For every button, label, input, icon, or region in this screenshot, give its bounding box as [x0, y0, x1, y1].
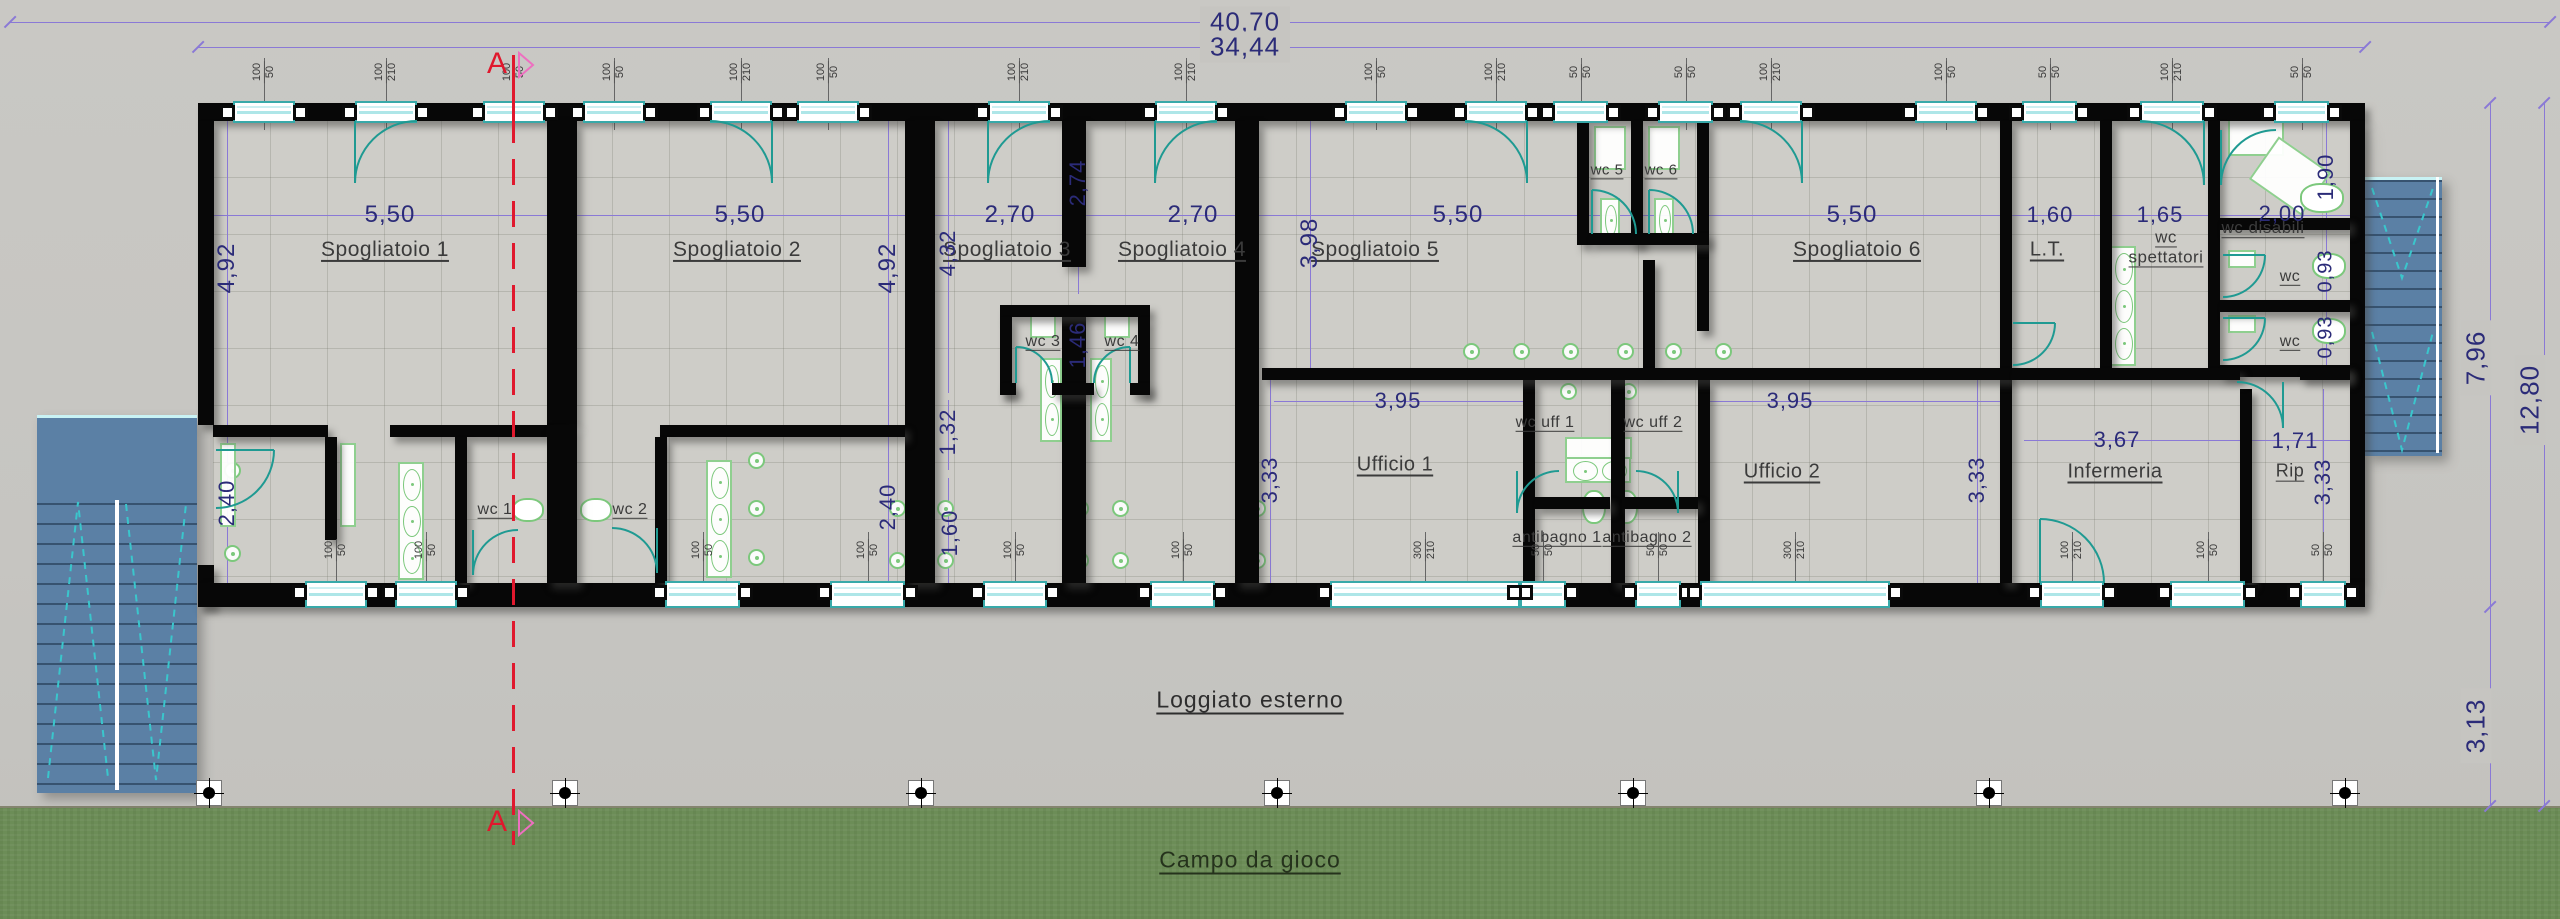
- room-label: wc uff 1: [1516, 414, 1575, 432]
- wall: [1643, 260, 1655, 370]
- window-jamb: [382, 585, 397, 600]
- sink-unit: [398, 462, 424, 580]
- room-label: antibagno 1: [1512, 529, 1601, 547]
- door-swing-arc: [2013, 323, 2055, 365]
- wall: [2300, 368, 2350, 380]
- shower-head: [1560, 383, 1577, 400]
- door-swing-arc: [1016, 347, 1052, 383]
- stair-direction-arrow: [2372, 332, 2437, 454]
- dimension-text: 12,80: [2515, 355, 2546, 445]
- window-jamb: [1405, 105, 1420, 120]
- window-size-label: 100210: [1007, 61, 1031, 83]
- window-bottom: [2170, 581, 2245, 608]
- toilet: [512, 498, 544, 522]
- field-label: Campo da gioco: [1159, 847, 1341, 874]
- door-swing-arc: [1592, 190, 1636, 234]
- window-jamb: [570, 105, 585, 120]
- window-jamb: [1137, 585, 1152, 600]
- window-top: [1553, 101, 1608, 123]
- window-jamb: [1317, 585, 1332, 600]
- window-jamb: [770, 105, 785, 120]
- dimension-text: 1,65: [2137, 202, 2184, 228]
- window-jamb: [652, 585, 667, 600]
- wall: [547, 121, 577, 425]
- shower-head: [1112, 552, 1129, 569]
- window-jamb: [342, 105, 357, 120]
- window-jamb: [1902, 105, 1917, 120]
- room-label: Spogliatoio 3: [943, 238, 1071, 262]
- window-top: [233, 101, 295, 123]
- room-label: wc spettatori: [2119, 227, 2214, 266]
- room-label: Ufficio 2: [1744, 461, 1820, 484]
- wall: [1000, 383, 1016, 395]
- section-mark-a-bottom: A: [487, 805, 507, 839]
- room-label: wc 4: [1105, 333, 1140, 351]
- wall: [547, 425, 577, 583]
- wall: [2220, 300, 2350, 312]
- column-marker: [196, 780, 222, 806]
- window-jamb: [738, 585, 753, 600]
- window-bottom: [395, 581, 457, 608]
- section-arrow-flag: [518, 810, 536, 836]
- dimension-text: 3,33: [2310, 459, 2336, 506]
- door-swing-arc: [355, 121, 417, 183]
- window-size-label: 5050: [1673, 64, 1697, 80]
- window-jamb: [1452, 105, 1467, 120]
- window-jamb: [2102, 585, 2117, 600]
- door-swing-arc: [2223, 318, 2265, 360]
- window-jamb: [1711, 105, 1726, 120]
- wall: [325, 437, 337, 540]
- window-bottom: [2040, 581, 2104, 608]
- wall: [2000, 121, 2012, 583]
- window-jamb: [857, 105, 872, 120]
- window-bottom: [1635, 581, 1681, 608]
- window-jamb: [2027, 585, 2042, 600]
- window-jamb: [970, 585, 985, 600]
- toilet: [580, 498, 612, 522]
- dimension-text: 1,32: [935, 409, 961, 456]
- room-label: Spogliatoio 5: [1311, 238, 1439, 262]
- window-jamb: [1606, 105, 1621, 120]
- window-top: [797, 101, 859, 123]
- dimension-text: 3,95: [1375, 388, 1422, 414]
- door-swing-arc: [1465, 121, 1527, 183]
- window-jamb: [1888, 585, 1903, 600]
- door-swing-arc: [1094, 347, 1130, 383]
- window-size-label: 100210: [729, 61, 753, 83]
- dimension-text: 1,90: [2313, 154, 2339, 201]
- window-top: [2140, 101, 2204, 123]
- wall: [1577, 121, 1589, 245]
- window-top: [988, 101, 1050, 123]
- window-jamb: [975, 105, 990, 120]
- dimension-text: 2,74: [1065, 160, 1091, 207]
- door-swing-arc: [1155, 121, 1217, 183]
- room-label: wc 3: [1026, 333, 1061, 351]
- window-jamb: [1622, 585, 1637, 600]
- window-size-label: 5050: [1568, 64, 1592, 80]
- window-size-label: 10050: [602, 61, 626, 83]
- dimension-text: 3,95: [1767, 388, 1814, 414]
- window-jamb: [1507, 585, 1522, 600]
- window-size-label: 5050: [2289, 64, 2313, 80]
- wall: [1697, 121, 1709, 331]
- window-jamb: [2261, 105, 2276, 120]
- wall: [1698, 380, 1710, 583]
- window-top: [355, 101, 417, 123]
- window-jamb: [2009, 105, 2024, 120]
- stair-direction-arrow: [48, 502, 112, 782]
- window-jamb: [1525, 105, 1540, 120]
- door-swing-arc: [710, 121, 772, 183]
- window-jamb: [1215, 105, 1230, 120]
- room-label: wc: [2280, 268, 2301, 286]
- wall: [455, 437, 467, 583]
- dimension-text: 1,71: [2272, 428, 2319, 454]
- column-marker: [1620, 780, 1646, 806]
- room-label: wc 6: [1645, 161, 1678, 178]
- column-marker: [908, 780, 934, 806]
- shower-head: [1463, 343, 1480, 360]
- floor-plan-canvas: Loggiato esterno Campo da gioco A A 1005…: [0, 0, 2560, 919]
- window-jamb: [2327, 105, 2342, 120]
- shower-head: [1665, 343, 1682, 360]
- window-bottom: [2300, 581, 2346, 608]
- window-size-label: 10050: [816, 61, 840, 83]
- window-size-label: 5050: [1531, 542, 1555, 558]
- column-marker: [2332, 780, 2358, 806]
- wall: [198, 121, 214, 425]
- wall: [1262, 368, 2012, 380]
- window-jamb: [1687, 585, 1702, 600]
- door-swing-arc: [2237, 382, 2283, 428]
- window-jamb: [1645, 105, 1660, 120]
- door-swing-arc: [2221, 130, 2276, 185]
- stair-direction-arrow: [2372, 188, 2437, 282]
- dimension-text: 2,40: [214, 480, 240, 527]
- window-size-label: 100210: [374, 61, 398, 83]
- shower-head: [1513, 343, 1530, 360]
- door-swing-arc: [1649, 190, 1693, 234]
- dimension-text: 4,92: [874, 243, 902, 294]
- window-jamb: [292, 585, 307, 600]
- wall: [1130, 383, 1150, 395]
- window-size-label: 10050: [1003, 539, 1027, 561]
- shower-head: [1617, 343, 1634, 360]
- room-label: Ufficio 1: [1357, 454, 1433, 477]
- window-size-label: 100210: [1759, 61, 1783, 83]
- room-label: L.T.: [2030, 239, 2064, 262]
- shower-head: [748, 452, 765, 469]
- column-marker: [1976, 780, 2002, 806]
- window-jamb: [2202, 105, 2217, 120]
- room-label: wc: [2280, 333, 2301, 351]
- window-jamb: [1800, 105, 1815, 120]
- window-bottom: [1330, 581, 1520, 608]
- dimension-text: 1,60: [2027, 202, 2074, 228]
- window-size-label: 10050: [324, 539, 348, 561]
- dimension-text: 5,50: [365, 201, 416, 229]
- window-size-label: 10050: [414, 539, 438, 561]
- dimension-text: 5,50: [1827, 201, 1878, 229]
- stair-direction-arrow: [126, 504, 190, 784]
- window-jamb: [2287, 585, 2302, 600]
- column-marker: [552, 780, 578, 806]
- wall: [1000, 305, 1150, 317]
- shower-head: [889, 552, 906, 569]
- window-jamb: [643, 105, 658, 120]
- window-top: [1658, 101, 1713, 123]
- window-bottom: [983, 581, 1047, 608]
- wall: [1611, 380, 1625, 583]
- window-size-label: 100210: [1174, 61, 1198, 83]
- window-size-label: 10050: [1170, 539, 1194, 561]
- window-jamb: [1332, 105, 1347, 120]
- room-label: Spogliatoio 6: [1793, 238, 1921, 262]
- wall: [1235, 121, 1259, 583]
- window-jamb: [293, 105, 308, 120]
- window-size-label: 100210: [1484, 61, 1508, 83]
- wall: [2012, 368, 2240, 380]
- window-top: [2022, 101, 2077, 123]
- window-jamb: [455, 585, 470, 600]
- dimension-text: 3,33: [1964, 457, 1990, 504]
- window-jamb: [817, 585, 832, 600]
- window-jamb: [1048, 105, 1063, 120]
- window-size-label: 10050: [855, 539, 879, 561]
- window-jamb: [784, 105, 799, 120]
- wall: [1052, 383, 1094, 395]
- window-size-label: 300210: [1783, 539, 1807, 561]
- shower-head: [1715, 343, 1732, 360]
- wall: [1589, 233, 1709, 245]
- room-label: Spogliatoio 4: [1118, 238, 1246, 262]
- window-top: [1740, 101, 1802, 123]
- window-jamb: [220, 105, 235, 120]
- window-top: [2274, 101, 2329, 123]
- dimension-text: 5,50: [1433, 201, 1484, 229]
- dimension-text: 4,32: [935, 230, 961, 277]
- room-label: Infermeria: [2067, 461, 2162, 484]
- window-jamb: [470, 105, 485, 120]
- dimension-line: [1710, 401, 2000, 402]
- window-jamb: [1975, 105, 1990, 120]
- section-line: [512, 55, 515, 117]
- window-jamb: [2075, 105, 2090, 120]
- window-bottom: [830, 581, 905, 608]
- window-jamb: [1540, 105, 1555, 120]
- window-top: [710, 101, 772, 123]
- window-bottom: [1700, 581, 1890, 608]
- column-marker: [1264, 780, 1290, 806]
- dimension-text: 0,93: [2315, 250, 2338, 293]
- dimension-text: 4,92: [213, 243, 241, 294]
- dimension-text: 3,13: [2461, 689, 2492, 764]
- window-bottom: [665, 581, 740, 608]
- stair-divider: [115, 500, 119, 790]
- wall: [2350, 121, 2365, 583]
- dimension-text: 3,98: [1296, 218, 1324, 269]
- window-size-label: 10050: [2195, 539, 2219, 561]
- window-jamb: [2243, 585, 2258, 600]
- room-label: wc 1: [478, 501, 513, 519]
- door-swing-arc: [988, 121, 1050, 183]
- window-jamb: [2157, 585, 2172, 600]
- window-top: [1155, 101, 1217, 123]
- window-jamb: [1564, 585, 1579, 600]
- window-bottom: [305, 581, 367, 608]
- window-size-label: 100210: [2160, 61, 2184, 83]
- dimension-text: 34,44: [1200, 32, 1290, 63]
- wall: [2100, 121, 2112, 368]
- door-swing-arc: [2223, 255, 2265, 297]
- section-line: [512, 117, 515, 845]
- window-size-label: 300210: [1413, 539, 1437, 561]
- room-label: Spogliatoio 1: [321, 238, 449, 262]
- window-jamb: [697, 105, 712, 120]
- window-jamb: [2127, 105, 2142, 120]
- window-size-label: 10050: [1934, 61, 1958, 83]
- dimension-text: 3,67: [2094, 427, 2141, 453]
- section-mark-a-top: A: [487, 47, 507, 81]
- window-size-label: 10050: [252, 61, 276, 83]
- dimension-text: 5,50: [715, 201, 766, 229]
- dimension-text: 0,93: [2315, 316, 2338, 359]
- window-jamb: [2344, 585, 2359, 600]
- window-top: [1915, 101, 1977, 123]
- room-label: Rip: [2276, 461, 2305, 482]
- shower-head: [224, 545, 241, 562]
- shower-head: [1562, 343, 1579, 360]
- dimension-text: 1,60: [937, 510, 963, 557]
- dimension-text: 2,70: [985, 201, 1036, 229]
- room-label: wc 2: [613, 501, 648, 519]
- shower-tray: [340, 443, 356, 527]
- section-arrow-flag: [518, 52, 536, 78]
- window-size-label: 5050: [1646, 542, 1670, 558]
- window-size-label: 100210: [2060, 539, 2084, 561]
- window-top: [1465, 101, 1527, 123]
- door-swing-arc: [1517, 471, 1559, 513]
- window-jamb: [1213, 585, 1228, 600]
- dimension-text: 2,00: [2259, 201, 2306, 227]
- window-size-label: 10050: [1364, 61, 1388, 83]
- window-top: [583, 101, 645, 123]
- door-swing-arc: [1740, 121, 1802, 183]
- wall: [660, 425, 905, 437]
- door-swing-arc: [612, 528, 657, 573]
- window-jamb: [1045, 585, 1060, 600]
- window-jamb: [365, 585, 380, 600]
- window-size-label: 5050: [2037, 64, 2061, 80]
- room-label: Spogliatoio 2: [673, 238, 801, 262]
- door-swing-arc: [2140, 121, 2204, 185]
- dimension-line: [2544, 103, 2545, 806]
- window-jamb: [1142, 105, 1157, 120]
- wall: [213, 425, 328, 437]
- dimension-text: 3,33: [1257, 457, 1283, 504]
- door-swing-arc: [1636, 471, 1678, 513]
- window-jamb: [543, 105, 558, 120]
- dimension-text: 7,96: [2461, 321, 2492, 396]
- shower-head: [1112, 500, 1129, 517]
- window-jamb: [415, 105, 430, 120]
- window-jamb: [1727, 105, 1742, 120]
- loggia-label: Loggiato esterno: [1156, 687, 1343, 714]
- window-bottom: [1150, 581, 1215, 608]
- dimension-text: 1,46: [1065, 322, 1091, 369]
- room-label: wc uff 2: [1624, 414, 1683, 432]
- window-size-label: 5050: [2311, 542, 2335, 558]
- wall: [390, 425, 560, 437]
- window-top: [1345, 101, 1407, 123]
- dimension-text: 2,40: [875, 484, 901, 531]
- window-jamb: [903, 585, 918, 600]
- wall: [905, 121, 935, 583]
- shower-head: [748, 549, 765, 566]
- window-size-label: 10050: [690, 539, 714, 561]
- shower-head: [748, 500, 765, 517]
- room-label: wc 5: [1591, 161, 1624, 178]
- dimension-text: 2,70: [1168, 201, 1219, 229]
